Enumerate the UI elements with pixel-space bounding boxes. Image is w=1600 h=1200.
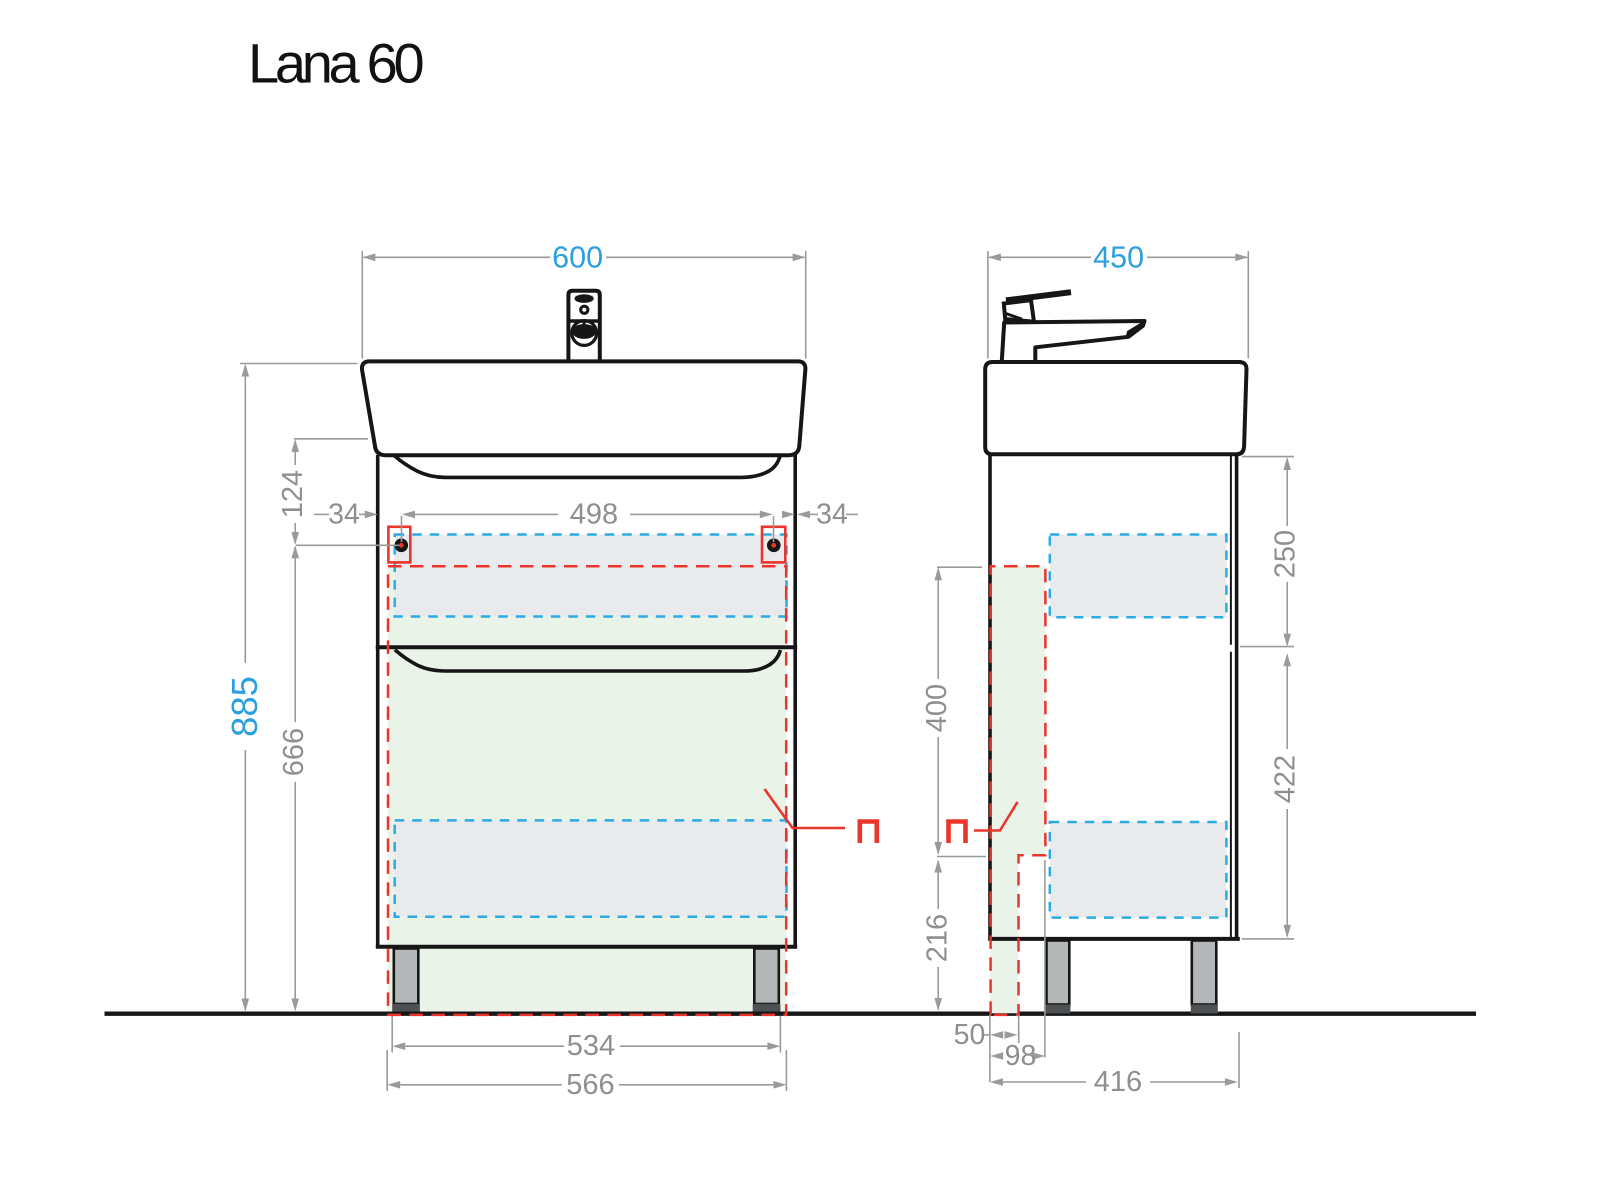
svg-text:400: 400 [921, 684, 953, 732]
svg-text:498: 498 [570, 498, 618, 530]
svg-text:534: 534 [567, 1030, 615, 1062]
svg-text:98: 98 [1005, 1040, 1037, 1072]
svg-text:250: 250 [1270, 530, 1302, 578]
svg-text:124: 124 [277, 470, 309, 518]
svg-text:566: 566 [566, 1069, 614, 1101]
svg-text:Lana 60: Lana 60 [248, 32, 422, 95]
svg-text:216: 216 [922, 914, 954, 962]
svg-text:600: 600 [552, 240, 603, 274]
svg-text:885: 885 [224, 676, 265, 737]
svg-text:666: 666 [278, 728, 310, 776]
svg-text:34: 34 [328, 498, 360, 530]
svg-text:416: 416 [1094, 1066, 1142, 1098]
svg-text:50: 50 [954, 1019, 986, 1051]
svg-text:450: 450 [1093, 240, 1144, 274]
svg-text:34: 34 [816, 498, 848, 530]
svg-text:422: 422 [1270, 755, 1302, 803]
